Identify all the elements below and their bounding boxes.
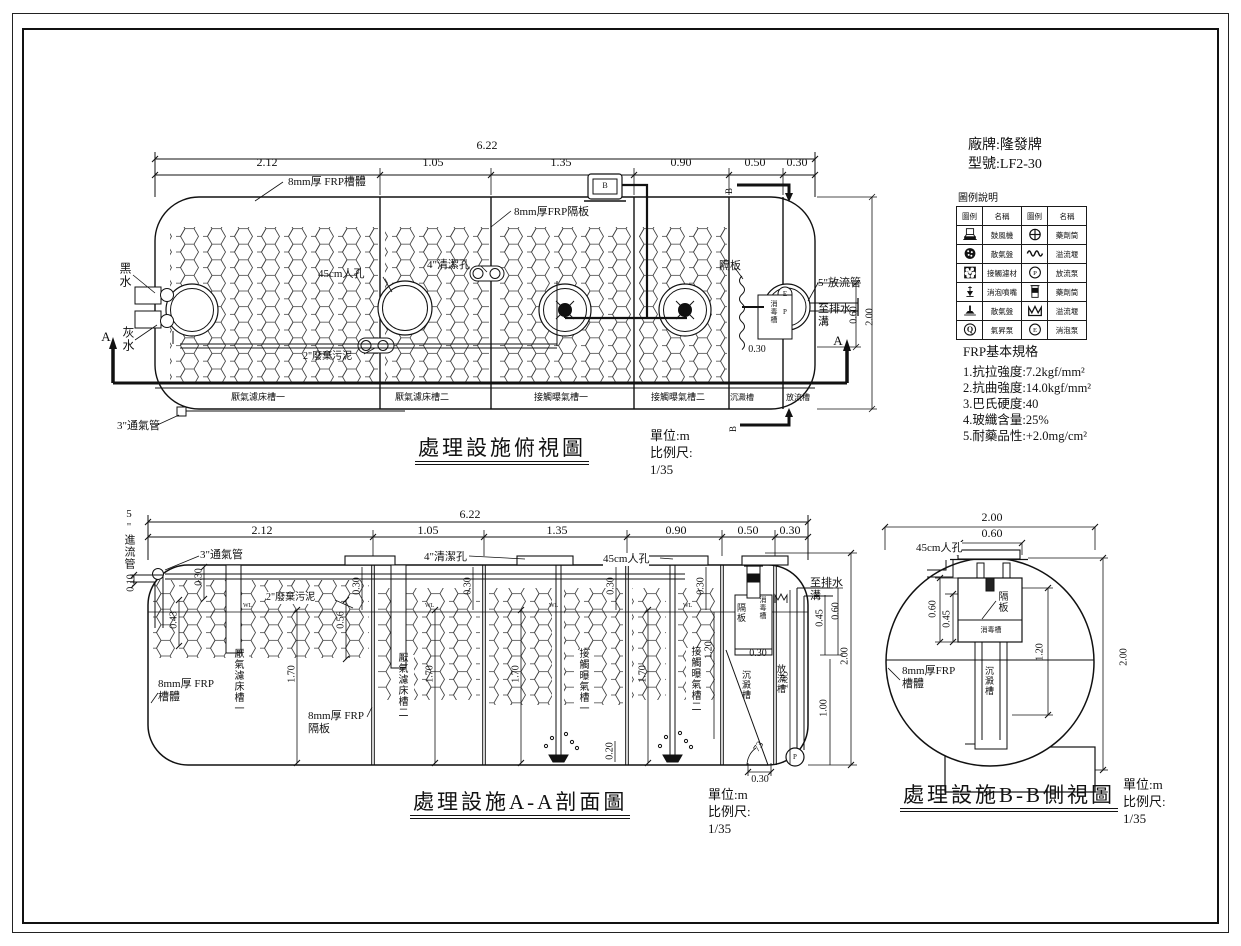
legend-header-name-1: 名稱 bbox=[983, 207, 1022, 226]
legend-name: 溢流堰 bbox=[1048, 302, 1087, 321]
tv-chamber-4: 沉澱槽 bbox=[730, 393, 754, 402]
sa-title: 處理設施A-A剖面圖 bbox=[410, 790, 630, 819]
tv-title: 處理設施俯視圖 bbox=[415, 436, 589, 465]
sa-dim-043: 0.43 bbox=[168, 611, 180, 629]
legend-name: 消泡泵 bbox=[1048, 321, 1087, 340]
sa-dim-045: 0.45 bbox=[814, 609, 826, 627]
tv-marker-b-top: B bbox=[724, 188, 734, 194]
legend-header-symbol-2: 圖例 bbox=[1022, 207, 1048, 226]
tv-chamber-0: 厭氣濾床槽一 bbox=[231, 392, 285, 402]
tv-label-black-water: 黑水 bbox=[119, 262, 131, 296]
bb-label-sediment: 沉澱槽 bbox=[984, 666, 993, 708]
sa-dim-120: 1.20 bbox=[703, 641, 715, 659]
legend-row: 接觸濾材 P 放流泵 bbox=[957, 264, 1087, 283]
sa-dim-056: 0.56 bbox=[335, 611, 347, 629]
sa-chamber-3: 接觸曝氣槽二 bbox=[689, 646, 699, 724]
defoam-pump-icon: E bbox=[1026, 330, 1044, 339]
frp-spec-title: FRP基本規格 bbox=[963, 344, 1053, 360]
legend-name: 鼓風機 bbox=[983, 226, 1022, 245]
tv-dim-060: 0.60 bbox=[848, 306, 860, 324]
effluent-pump-icon: P bbox=[1026, 273, 1044, 282]
legend-name: 氣昇泵 bbox=[983, 321, 1022, 340]
sa-label-waste: 2"廢棄污泥 bbox=[266, 592, 315, 604]
tv-dim-5: 0.30 bbox=[787, 156, 808, 170]
tv-pump-e: E bbox=[783, 290, 787, 298]
bb-dim-w200: 2.00 bbox=[982, 511, 1003, 525]
bb-label-disinfect: 消毒槽 bbox=[981, 626, 1002, 634]
tv-dim-2: 1.35 bbox=[551, 156, 572, 170]
chemical-feeder-plan-icon bbox=[1026, 235, 1044, 244]
sa-label-manhole: 45cm人孔 bbox=[603, 553, 649, 566]
bb-label-manhole: 45cm人孔 bbox=[916, 542, 962, 555]
bb-dim-045: 0.45 bbox=[941, 610, 953, 628]
sa-dim-030a: 0.30 bbox=[193, 568, 205, 586]
tv-pump-p: P bbox=[783, 308, 787, 316]
bb-dim-w060: 0.60 bbox=[982, 527, 1003, 541]
sa-wl-4: WL bbox=[683, 603, 692, 610]
tv-marker-a-left: A bbox=[101, 330, 110, 345]
drawing-sheet: 6.22 2.12 1.05 1.35 0.90 0.50 0.30 8mm厚 … bbox=[0, 0, 1241, 946]
bb-scale: 1/35 bbox=[1123, 812, 1146, 827]
svg-text:P: P bbox=[1033, 270, 1037, 277]
tv-label-waste: 2"廢棄污泥 bbox=[303, 351, 352, 363]
sa-scale: 1/35 bbox=[708, 822, 731, 837]
sa-dim-100: 1.00 bbox=[818, 699, 830, 717]
sa-dim-200: 2.00 bbox=[839, 647, 851, 665]
sa-dim-060: 0.60 bbox=[830, 602, 842, 620]
sa-dim-030d: 0.30 bbox=[605, 577, 617, 595]
frp-spec-item: 5.耐藥品性:+2.0mg/cm² bbox=[963, 425, 1087, 444]
sa-label-to-ditch: 至排水溝 bbox=[810, 577, 850, 602]
sa-dim-total: 6.22 bbox=[460, 508, 481, 522]
tv-label-vent: 3"通氣管 bbox=[117, 420, 163, 433]
sa-chamber-2: 接觸曝氣槽一 bbox=[577, 648, 587, 726]
manhole-ch1 bbox=[166, 284, 218, 336]
sa-pump-p: P bbox=[793, 753, 797, 761]
sa-wl-3: WL bbox=[549, 603, 558, 610]
tv-dim-4: 0.50 bbox=[745, 156, 766, 170]
sa-dim-030e: 0.30 bbox=[695, 577, 707, 595]
legend-name: 溢流堰 bbox=[1048, 245, 1087, 264]
bb-label-shell: 8mm厚FRP槽體 bbox=[902, 665, 962, 690]
sa-wl-1: WL bbox=[243, 603, 252, 610]
manhole-covers bbox=[345, 556, 788, 565]
defoam-nozzle-icon bbox=[961, 292, 979, 301]
legend-name: 藥劑筒 bbox=[1048, 226, 1087, 245]
overflow-weir-side-icon bbox=[1026, 311, 1044, 320]
effluent-pipe-section bbox=[786, 588, 833, 766]
sa-chamber-0: 厭氣濾床槽一 bbox=[232, 648, 242, 726]
sa-dim-170a: 1.70 bbox=[286, 665, 298, 683]
tv-unit: 單位:m bbox=[650, 429, 690, 444]
bb-label-partition: 隔板 bbox=[996, 591, 1006, 617]
top-view-drawing bbox=[95, 135, 885, 475]
blower-plan-icon bbox=[961, 235, 979, 244]
svg-text:Q: Q bbox=[966, 325, 972, 334]
sa-dim-3: 0.90 bbox=[666, 524, 687, 538]
legend-row: 消泡噴嘴 藥劑筒 bbox=[957, 283, 1087, 302]
legend-name: 藥劑筒 bbox=[1048, 283, 1087, 302]
tv-chamber-3: 接觸曝氣槽二 bbox=[651, 392, 705, 402]
legend-name: 消泡噴嘴 bbox=[983, 283, 1022, 302]
overflow-weir-plan bbox=[740, 276, 745, 350]
sa-dim-4: 0.50 bbox=[738, 524, 759, 538]
legend-name: 放流泵 bbox=[1048, 264, 1087, 283]
legend-title: 圖例說明 bbox=[958, 193, 998, 205]
sa-label-inlet: 5"進流管 bbox=[123, 508, 134, 584]
sa-scale-label: 比例尺: bbox=[708, 805, 751, 820]
sa-dim-2: 1.35 bbox=[547, 524, 568, 538]
sa-label-partition: 隔板 bbox=[736, 603, 745, 627]
legend-header-symbol-1: 圖例 bbox=[957, 207, 983, 226]
tv-label-disinfect: 消毒槽 bbox=[770, 300, 777, 326]
sa-dim-020: 0.20 bbox=[604, 742, 616, 760]
tv-label-partition: 隔板 bbox=[719, 260, 741, 273]
tv-dim-030: 0.30 bbox=[748, 344, 766, 356]
bb-view-drawing bbox=[865, 500, 1155, 800]
airlift-pump-icon: Q bbox=[961, 330, 979, 339]
tv-blower-letter: B bbox=[602, 181, 607, 190]
sa-chamber-5: 放流槽 bbox=[776, 664, 785, 706]
sa-dim-170b: 1.70 bbox=[424, 665, 436, 683]
manufacturer-label: 廠牌:隆發牌 bbox=[968, 138, 1042, 154]
legend-header-name-2: 名稱 bbox=[1048, 207, 1087, 226]
sa-wl-2: WL bbox=[425, 603, 434, 610]
legend-name: 散氣盤 bbox=[983, 245, 1022, 264]
tv-dim-200: 2.00 bbox=[864, 308, 876, 326]
air-diffuser-side-icon bbox=[961, 311, 979, 320]
sa-dim-170d: 1.70 bbox=[637, 665, 649, 683]
tv-marker-b-bottom: B bbox=[728, 426, 738, 432]
bb-dim-120: 1.20 bbox=[1034, 643, 1046, 661]
sa-label-disinfect: 消毒槽 bbox=[759, 596, 766, 622]
bb-dim-h200: 2.00 bbox=[1118, 648, 1130, 666]
legend-table: 圖例 名稱 圖例 名稱 鼓風機 藥劑筒 散氣盤 溢流堰 接觸濾材 P 放流泵 消… bbox=[956, 206, 1087, 340]
sa-dim-0: 2.12 bbox=[252, 524, 273, 538]
sa-dim-030b: 0.30 bbox=[351, 577, 363, 595]
tv-label-manhole: 45cm人孔 bbox=[318, 268, 364, 281]
legend-name: 接觸濾材 bbox=[983, 264, 1022, 283]
sa-chamber-4: 沉澱槽 bbox=[741, 670, 750, 712]
tv-label-outlet: 5"放流管 bbox=[818, 277, 866, 290]
vent-pipe-plan bbox=[155, 407, 405, 426]
tv-label-grey-water: 灰水 bbox=[122, 326, 134, 360]
tv-chamber-5: 放流槽 bbox=[786, 393, 810, 402]
legend-row: 散氣盤 溢流堰 bbox=[957, 302, 1087, 321]
tv-dim-0: 2.12 bbox=[257, 156, 278, 170]
svg-text:E: E bbox=[1032, 327, 1036, 334]
legend-row: 鼓風機 藥劑筒 bbox=[957, 226, 1087, 245]
bb-scale-label: 比例尺: bbox=[1123, 795, 1166, 810]
legend-name: 散氣盤 bbox=[983, 302, 1022, 321]
sa-dim-1: 1.05 bbox=[418, 524, 439, 538]
tv-scale: 1/35 bbox=[650, 463, 673, 478]
bb-unit: 單位:m bbox=[1123, 778, 1163, 793]
tv-chamber-2: 接觸曝氣槽一 bbox=[534, 392, 588, 402]
manhole-ch2 bbox=[378, 281, 432, 335]
bb-dim-060: 0.60 bbox=[927, 600, 939, 618]
legend-row: 散氣盤 溢流堰 bbox=[957, 245, 1087, 264]
tv-label-shell: 8mm厚 FRP槽體 bbox=[288, 176, 366, 189]
sa-dim-010: 0.10 bbox=[125, 574, 137, 592]
sa-dim-030-box: 0.30 bbox=[749, 648, 767, 660]
overflow-weir-plan-icon bbox=[1026, 254, 1044, 263]
legend-row: Q 氣昇泵 E 消泡泵 bbox=[957, 321, 1087, 340]
air-diffuser-plan-icon bbox=[961, 254, 979, 263]
sa-dim-030c: 0.30 bbox=[462, 577, 474, 595]
sa-dim-030-bottom: 0.30 bbox=[751, 774, 769, 786]
sa-label-clean-hole: 4"清潔孔 bbox=[424, 551, 467, 564]
sa-label-baffle: 8mm厚 FRP隔板 bbox=[308, 710, 370, 735]
tv-dim-1: 1.05 bbox=[423, 156, 444, 170]
model-label: 型號:LF2-30 bbox=[968, 157, 1042, 173]
sa-chamber-1: 厭氣濾床槽二 bbox=[396, 652, 406, 730]
tv-label-baffle: 8mm厚FRP隔板 bbox=[514, 206, 589, 219]
tv-label-clean-hole: 4"清潔孔 bbox=[427, 259, 470, 272]
tv-marker-a-right: A bbox=[833, 334, 842, 349]
sa-unit: 單位:m bbox=[708, 788, 748, 803]
sa-dim-5: 0.30 bbox=[780, 524, 801, 538]
sa-label-vent: 3"通氣管 bbox=[200, 549, 246, 562]
tv-dim-total: 6.22 bbox=[477, 139, 498, 153]
tv-chamber-1: 厭氣濾床槽二 bbox=[395, 392, 449, 402]
chemical-feeder-side-icon bbox=[1026, 292, 1044, 301]
sa-label-shell: 8mm厚 FRP槽體 bbox=[158, 678, 220, 703]
legend-header-row: 圖例 名稱 圖例 名稱 bbox=[957, 207, 1087, 226]
sa-dim-170c: 1.70 bbox=[510, 665, 522, 683]
bb-title: 處理設施B-B側視圖 bbox=[900, 783, 1118, 812]
contact-media-icon bbox=[961, 273, 979, 282]
tv-scale-label: 比例尺: bbox=[650, 446, 693, 461]
tv-dim-3: 0.90 bbox=[671, 156, 692, 170]
